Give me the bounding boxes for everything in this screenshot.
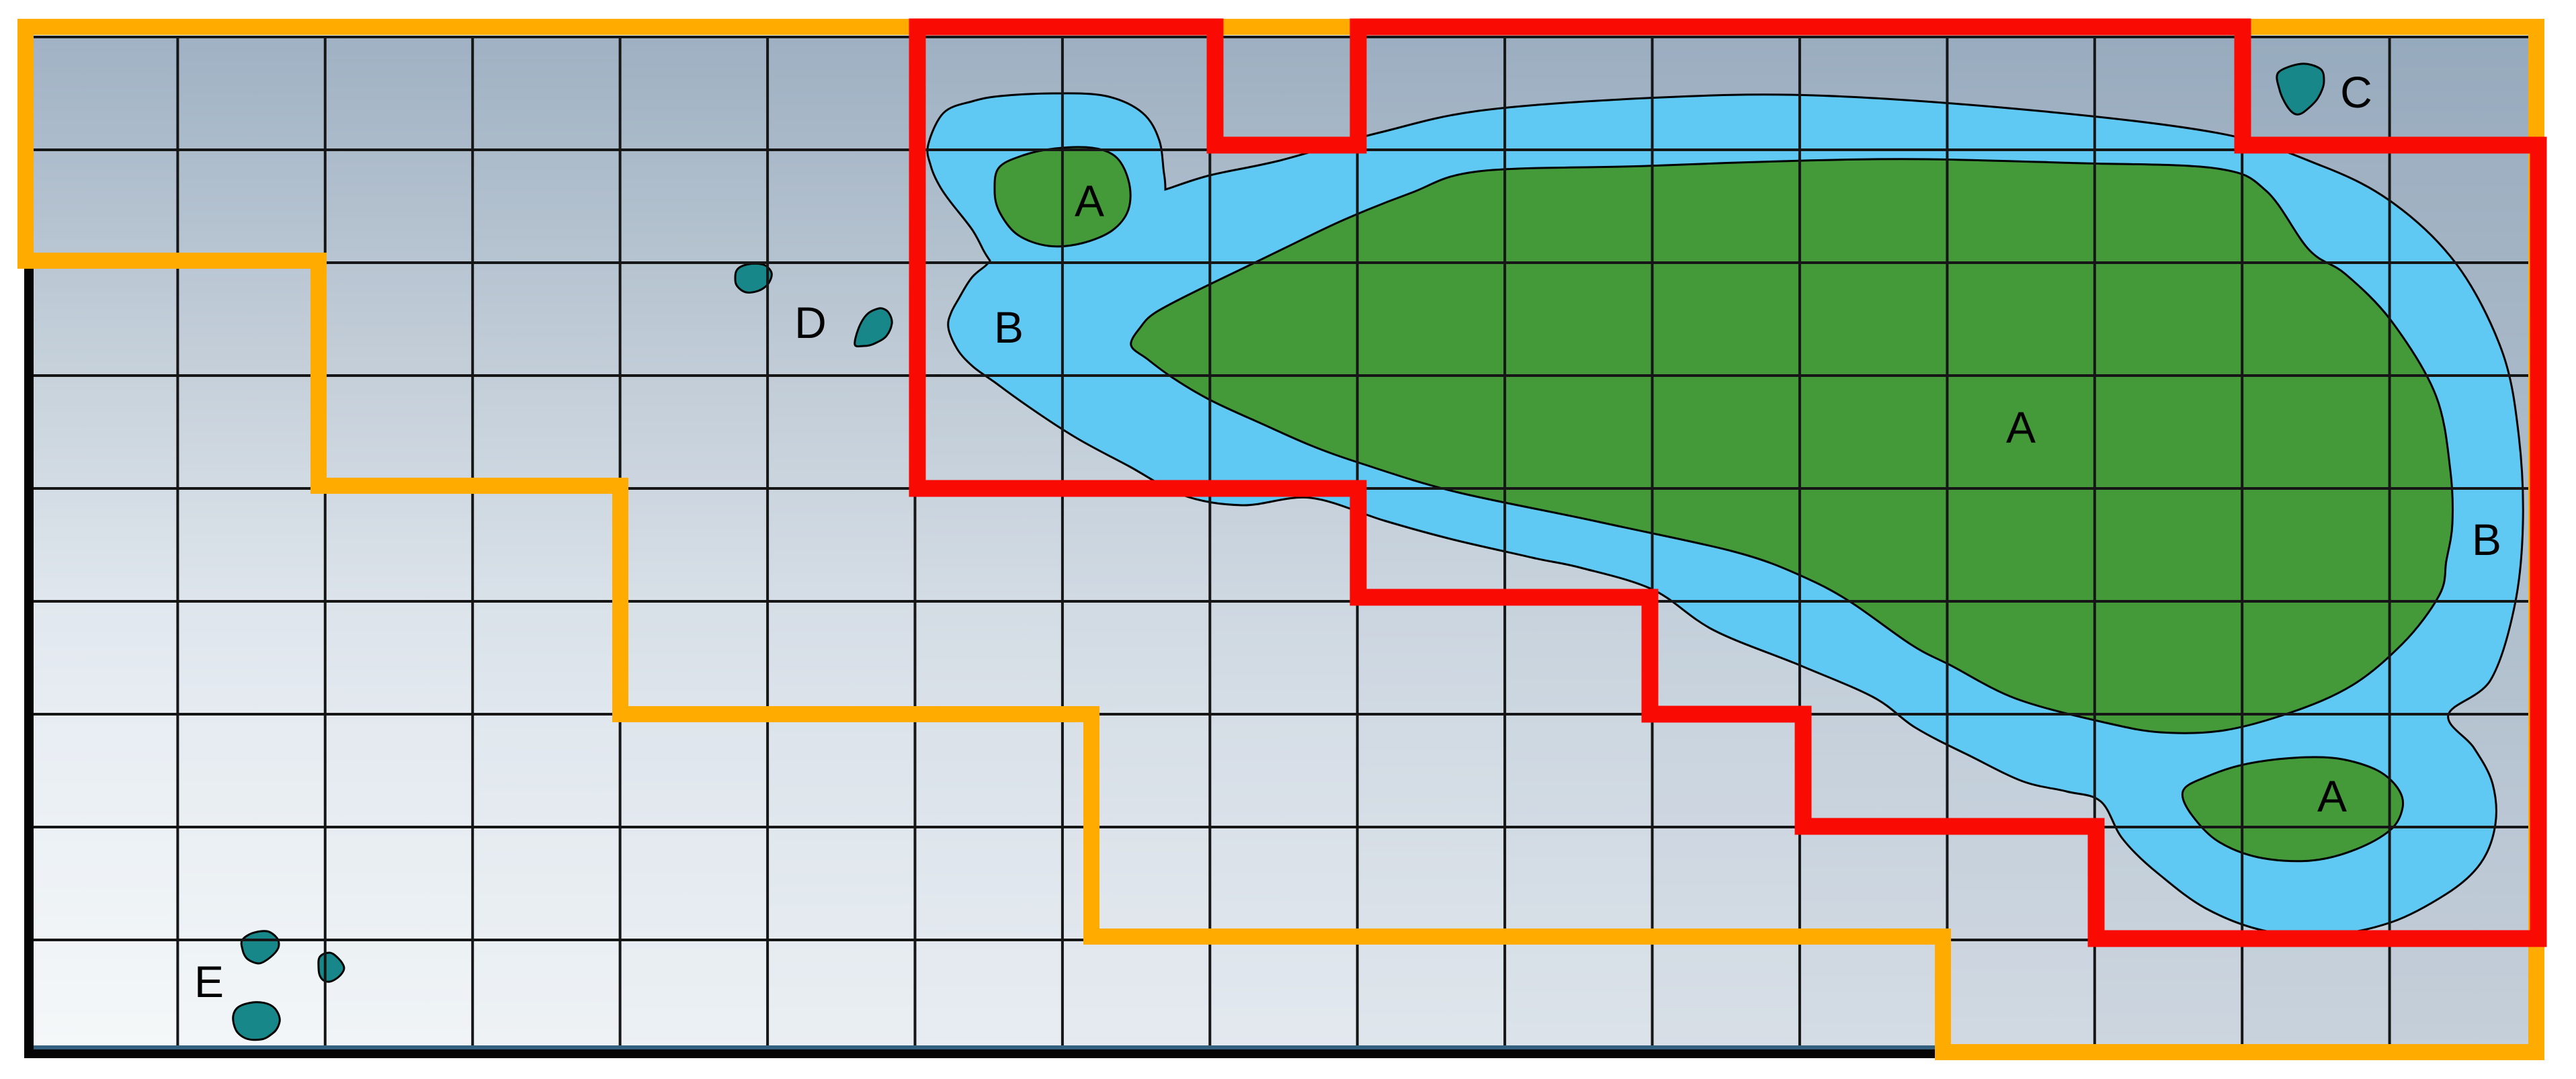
svg-text:B: B (994, 302, 1024, 352)
svg-text:B: B (2472, 515, 2501, 564)
svg-text:E: E (194, 957, 224, 1006)
svg-text:A: A (1075, 176, 1104, 226)
svg-text:A: A (2317, 771, 2347, 821)
svg-text:D: D (794, 298, 827, 347)
svg-text:C: C (2340, 67, 2372, 117)
svg-text:A: A (2006, 402, 2036, 452)
